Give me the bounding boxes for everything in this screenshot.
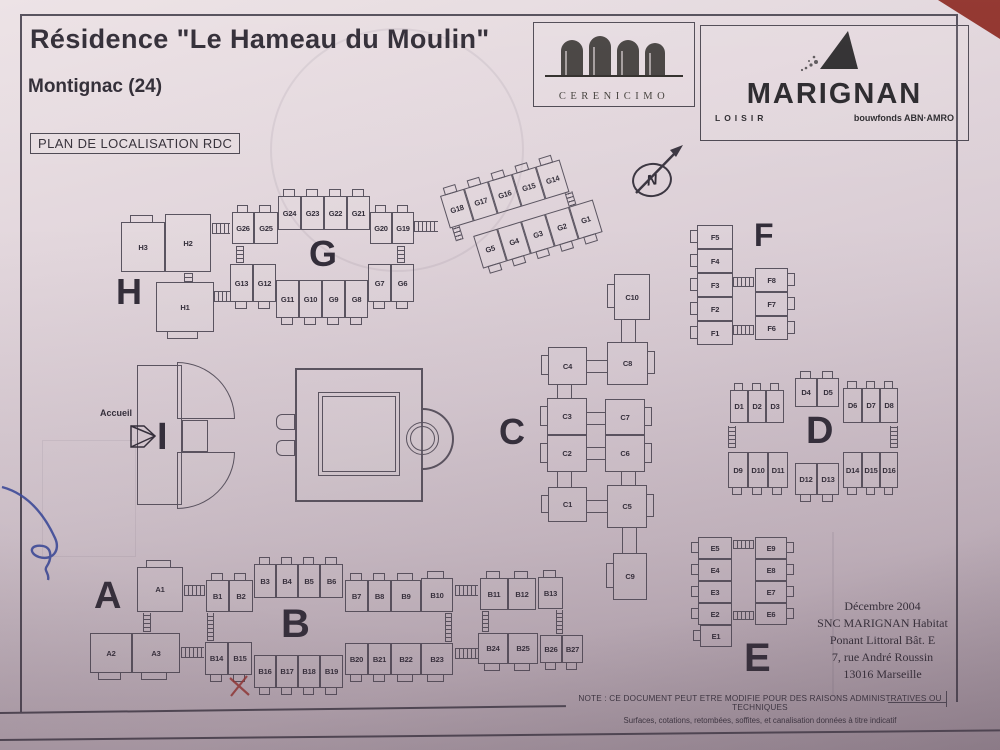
walkway-connector — [557, 385, 572, 398]
balcony-tab — [373, 573, 385, 581]
balcony-tab — [325, 557, 337, 565]
footer-company: SNC MARIGNAN Habitat — [790, 615, 975, 632]
walkway-connector — [184, 273, 193, 282]
balcony-tab — [211, 573, 223, 581]
balcony-tab — [787, 273, 795, 285]
unit-g7: G7 — [368, 264, 391, 302]
balcony-tab — [281, 557, 292, 565]
marignan-tagline-loisir: LOISIR — [715, 113, 767, 123]
balcony-tab — [259, 557, 270, 565]
unit-d4: D4 — [795, 378, 817, 407]
balcony-tab — [786, 564, 794, 575]
balcony-tab — [800, 494, 811, 502]
balcony-tab — [884, 381, 893, 389]
balcony-tab — [488, 262, 503, 273]
note-line-1: NOTE : CE DOCUMENT PEUT ETRE MODIFIE POU… — [565, 694, 955, 712]
balcony-tab — [541, 355, 549, 375]
balcony-tab — [515, 162, 530, 173]
unit-b3: B3 — [254, 564, 276, 598]
unit-g24: G24 — [278, 196, 301, 230]
walkway-connector — [482, 611, 489, 632]
unit-b1: B1 — [206, 580, 229, 612]
balcony-tab — [234, 573, 246, 581]
balcony-tab — [800, 371, 811, 379]
unit-h1: H1 — [156, 282, 214, 332]
unit-b4: B4 — [276, 564, 298, 598]
balcony-tab — [772, 487, 782, 495]
balcony-tab — [327, 317, 339, 325]
unit-b22: B22 — [391, 643, 421, 675]
balcony-tab — [690, 278, 698, 290]
balcony-tab — [130, 215, 154, 223]
unit-b2: B2 — [229, 580, 253, 612]
marignan-sail-icon — [790, 29, 880, 75]
unit-c5: C5 — [607, 485, 647, 528]
balcony-tab — [583, 233, 598, 244]
balcony-tab — [375, 205, 386, 213]
balcony-tab — [786, 586, 794, 597]
reception-label: Accueil — [100, 408, 132, 418]
walkway-connector — [557, 472, 572, 487]
unit-d6: D6 — [843, 388, 862, 423]
balcony-tab — [373, 674, 385, 682]
unit-d11: D11 — [768, 452, 788, 488]
balcony-tab — [543, 570, 556, 578]
unit-c8: C8 — [607, 342, 648, 385]
unit-b18: B18 — [298, 655, 320, 688]
balcony-tab — [691, 586, 699, 597]
unit-h3: H3 — [121, 222, 165, 272]
balcony-tab — [691, 564, 699, 575]
unit-d16: D16 — [880, 452, 898, 488]
unit-a1: A1 — [137, 567, 183, 612]
unit-g22: G22 — [324, 196, 347, 230]
unit-d3: D3 — [766, 390, 784, 423]
footer-address-block: Décembre 2004 SNC MARIGNAN Habitat Ponan… — [790, 598, 975, 683]
balcony-tab — [303, 557, 314, 565]
unit-f5: F5 — [697, 225, 733, 249]
balcony-tab — [538, 155, 553, 166]
balcony-tab — [259, 205, 271, 213]
unit-d13: D13 — [817, 463, 839, 495]
unit-a2: A2 — [90, 633, 132, 673]
balcony-tab — [233, 674, 245, 682]
unit-d2: D2 — [748, 390, 766, 423]
unit-d5: D5 — [817, 378, 839, 407]
rule-bottom-2 — [0, 729, 1000, 740]
unit-e3: E3 — [698, 581, 732, 603]
unit-d9: D9 — [728, 452, 748, 488]
cerenicimo-logo: CERENICIMO — [533, 22, 695, 107]
unit-b7: B7 — [345, 580, 368, 612]
reception-mid-block — [182, 420, 208, 452]
unit-g6: G6 — [391, 264, 414, 302]
unit-f4: F4 — [697, 249, 733, 273]
walkway-connector — [733, 540, 754, 549]
unit-b17: B17 — [276, 655, 298, 688]
footer-address-line-1: Ponant Littoral Bât. E — [790, 632, 975, 649]
unit-g21: G21 — [347, 196, 370, 230]
plan-label: PLAN DE LOCALISATION RDC — [30, 133, 240, 154]
unit-f2: F2 — [697, 297, 733, 321]
rule-bottom-1 — [0, 705, 566, 713]
unit-g13: G13 — [230, 264, 253, 302]
balcony-tab — [690, 254, 698, 266]
building-letter-e: E — [744, 638, 771, 678]
site-plan: Résidence "Le Hameau du Moulin" Montigna… — [0, 0, 1000, 750]
balcony-tab — [373, 301, 385, 309]
balcony-tab — [141, 672, 167, 680]
balcony-tab — [770, 383, 779, 391]
unit-b11: B11 — [480, 578, 508, 610]
walkway-connector — [621, 320, 636, 342]
unit-c6: C6 — [605, 435, 645, 472]
unit-f8: F8 — [755, 268, 788, 292]
unit-b25: B25 — [508, 633, 538, 664]
building-letter-d: D — [806, 412, 833, 450]
unit-d12: D12 — [795, 463, 817, 495]
unit-e2: E2 — [698, 603, 732, 625]
balcony-tab — [210, 674, 222, 682]
balcony-tab — [559, 240, 574, 251]
balcony-tab — [690, 302, 698, 314]
balcony-tab — [237, 205, 248, 213]
walkway-connector — [587, 500, 607, 513]
balcony-tab — [325, 687, 337, 695]
unit-h2: H2 — [165, 214, 211, 272]
balcony-tab — [98, 672, 120, 680]
clubhouse-pool-inner — [322, 396, 396, 472]
balcony-tab — [467, 177, 482, 188]
building-letter-b: B — [281, 604, 310, 644]
balcony-tab — [884, 487, 893, 495]
frame-top — [20, 14, 958, 16]
marignan-name: MARIGNAN — [701, 78, 968, 111]
note-block: NOTE : CE DOCUMENT PEUT ETRE MODIFIE POU… — [565, 694, 955, 725]
unit-e7: E7 — [755, 581, 787, 603]
balcony-tab — [540, 406, 548, 426]
balcony-tab — [787, 321, 795, 333]
balcony-tab — [397, 674, 413, 682]
unit-e8: E8 — [755, 559, 787, 581]
unit-b24: B24 — [478, 633, 508, 664]
walkway-connector — [733, 325, 754, 335]
walkway-connector — [622, 528, 637, 553]
unit-b5: B5 — [298, 564, 320, 598]
balcony-tab — [281, 687, 292, 695]
balcony-tab — [566, 662, 577, 670]
cerenicimo-arches-icon — [539, 29, 689, 85]
walkway-connector — [733, 611, 754, 620]
balcony-tab — [606, 563, 614, 588]
balcony-tab — [646, 494, 654, 517]
unit-b15: B15 — [228, 642, 252, 675]
balcony-tab — [486, 571, 501, 579]
balcony-tab — [822, 494, 833, 502]
reception-fan-top — [177, 362, 235, 419]
building-g-wing: G1G2G3G4G5G14G15G16G17G18 — [440, 152, 609, 278]
balcony-tab — [732, 487, 742, 495]
balcony-tab — [491, 169, 506, 180]
balcony-tab — [304, 317, 316, 325]
balcony-tab — [396, 301, 408, 309]
balcony-tab — [427, 571, 444, 579]
clubhouse-entry-top — [276, 414, 295, 430]
unit-e1: E1 — [700, 625, 732, 647]
balcony-tab — [329, 189, 341, 197]
footer-city: 13016 Marseille — [790, 666, 975, 683]
building-letter-h: H — [116, 274, 142, 310]
unit-g23: G23 — [301, 196, 324, 230]
unit-g12: G12 — [253, 264, 276, 302]
balcony-tab — [235, 301, 247, 309]
footer-date: Décembre 2004 — [790, 598, 975, 615]
balcony-tab — [734, 383, 743, 391]
building-letter-a: A — [94, 577, 121, 615]
walkway-connector — [587, 412, 605, 425]
walkway-connector — [733, 277, 754, 287]
cerenicimo-name: CERENICIMO — [534, 91, 694, 102]
balcony-tab — [352, 189, 364, 197]
unit-b6: B6 — [320, 564, 343, 598]
balcony-tab — [512, 255, 527, 266]
balcony-tab — [607, 284, 615, 309]
unit-c3: C3 — [547, 398, 587, 435]
walkway-connector — [212, 223, 230, 234]
balcony-tab — [541, 495, 549, 513]
balcony-tab — [514, 663, 530, 671]
walkway-connector — [236, 246, 244, 263]
balcony-tab — [427, 674, 444, 682]
unit-e6: E6 — [755, 603, 787, 625]
balcony-tab — [822, 371, 833, 379]
walkway-connector — [397, 246, 405, 263]
marignan-partner-bouwfonds: bouwfonds ABN·AMRO — [854, 113, 954, 123]
balcony-tab — [514, 571, 529, 579]
unit-e9: E9 — [755, 537, 787, 559]
walkway-connector — [621, 472, 636, 485]
unit-g9: G9 — [322, 280, 345, 318]
balcony-tab — [647, 351, 655, 374]
balcony-tab — [644, 443, 652, 463]
walkway-connector — [455, 648, 478, 659]
balcony-tab — [306, 189, 318, 197]
unit-d14: D14 — [843, 452, 862, 488]
unit-b19: B19 — [320, 655, 343, 688]
reception-fan-bottom — [177, 452, 235, 509]
walkway-connector — [207, 613, 214, 641]
balcony-tab — [847, 381, 857, 389]
walkway-connector — [728, 426, 736, 448]
balcony-tab — [752, 487, 762, 495]
balcony-tab — [259, 687, 270, 695]
clubhouse-tower-ring-inner — [410, 426, 435, 451]
unit-g20: G20 — [370, 212, 392, 244]
unit-b8: B8 — [368, 580, 391, 612]
balcony-tab — [691, 608, 699, 619]
unit-d1: D1 — [730, 390, 748, 423]
balcony-tab — [787, 297, 795, 309]
unit-f3: F3 — [697, 273, 733, 297]
marignan-logo: MARIGNAN LOISIR bouwfonds ABN·AMRO — [700, 25, 969, 141]
balcony-tab — [752, 383, 761, 391]
walkway-connector — [445, 613, 452, 642]
walkway-connector — [143, 613, 151, 632]
unit-b13: B13 — [538, 577, 563, 609]
building-letter-i: I — [157, 418, 168, 456]
walkway-connector — [452, 226, 464, 242]
balcony-tab — [545, 662, 556, 670]
walkway-connector — [181, 647, 204, 658]
unit-g11: G11 — [276, 280, 299, 318]
unit-b16: B16 — [254, 655, 276, 688]
footer-address-line-2: 7, rue André Roussin — [790, 649, 975, 666]
unit-g10: G10 — [299, 280, 322, 318]
balcony-tab — [536, 248, 551, 259]
balcony-tab — [283, 189, 295, 197]
unit-f7: F7 — [755, 292, 788, 316]
unit-e4: E4 — [698, 559, 732, 581]
unit-f6: F6 — [755, 316, 788, 340]
balcony-tab — [350, 674, 362, 682]
note-line-2: Surfaces, cotations, retombées, soffites… — [565, 716, 955, 725]
walkway-connector — [890, 426, 898, 448]
balcony-tab — [258, 301, 270, 309]
unit-c4: C4 — [548, 347, 587, 385]
page-title: Résidence "Le Hameau du Moulin" — [30, 24, 490, 55]
balcony-tab — [690, 326, 698, 338]
unit-c1: C1 — [548, 487, 587, 522]
unit-d10: D10 — [748, 452, 768, 488]
balcony-tab — [443, 184, 458, 195]
unit-b26: B26 — [540, 635, 562, 663]
balcony-tab — [644, 407, 652, 426]
location-subtitle: Montignac (24) — [28, 76, 162, 98]
north-compass-icon: N — [630, 160, 675, 200]
balcony-tab — [786, 542, 794, 553]
balcony-tab — [866, 381, 875, 389]
balcony-tab — [303, 687, 314, 695]
unit-b23: B23 — [421, 643, 453, 675]
compass-letter: N — [645, 171, 658, 189]
balcony-tab — [397, 205, 408, 213]
balcony-tab — [693, 630, 701, 641]
unit-f1: F1 — [697, 321, 733, 345]
balcony-tab — [484, 663, 500, 671]
walkway-connector — [556, 610, 563, 634]
walkway-connector — [184, 585, 205, 596]
unit-b27: B27 — [562, 635, 583, 663]
unit-b20: B20 — [345, 643, 368, 675]
balcony-tab — [350, 317, 362, 325]
unit-c10: C10 — [614, 274, 650, 320]
unit-g19: G19 — [392, 212, 414, 244]
unit-c2: C2 — [547, 435, 587, 472]
building-letter-c: C — [499, 414, 525, 450]
building-letter-f: F — [754, 219, 774, 251]
unit-b10: B10 — [421, 578, 453, 612]
balcony-tab — [167, 331, 198, 339]
unit-a3: A3 — [132, 633, 180, 673]
walkway-connector — [565, 191, 577, 207]
unit-b14: B14 — [205, 642, 228, 675]
walkway-connector — [455, 585, 478, 596]
balcony-tab — [540, 443, 548, 463]
balcony-tab — [146, 560, 171, 568]
walkway-connector — [414, 221, 438, 232]
balcony-tab — [691, 542, 699, 553]
balcony-tab — [397, 573, 413, 581]
walkway-connector — [587, 447, 605, 460]
walkway-connector — [587, 360, 607, 373]
unit-c9: C9 — [613, 553, 647, 600]
walkway-connector — [214, 291, 230, 302]
balcony-tab — [350, 573, 362, 581]
unit-c7: C7 — [605, 399, 645, 435]
balcony-tab — [281, 317, 293, 325]
unit-d15: D15 — [862, 452, 880, 488]
unit-b9: B9 — [391, 580, 421, 612]
balcony-tab — [847, 487, 857, 495]
balcony-tab — [690, 230, 698, 242]
unit-b12: B12 — [508, 578, 536, 610]
building-letter-g: G — [309, 236, 337, 272]
unit-d8: D8 — [880, 388, 898, 423]
balcony-tab — [786, 608, 794, 619]
unit-g8: G8 — [345, 280, 368, 318]
frame-left — [20, 14, 22, 712]
balcony-tab — [866, 487, 875, 495]
unit-g25: G25 — [254, 212, 278, 244]
unit-e5: E5 — [698, 537, 732, 559]
unit-d7: D7 — [862, 388, 880, 423]
ghost-rect — [42, 440, 136, 557]
unit-b21: B21 — [368, 643, 391, 675]
clubhouse-entry-bottom — [276, 440, 295, 456]
unit-g26: G26 — [232, 212, 254, 244]
